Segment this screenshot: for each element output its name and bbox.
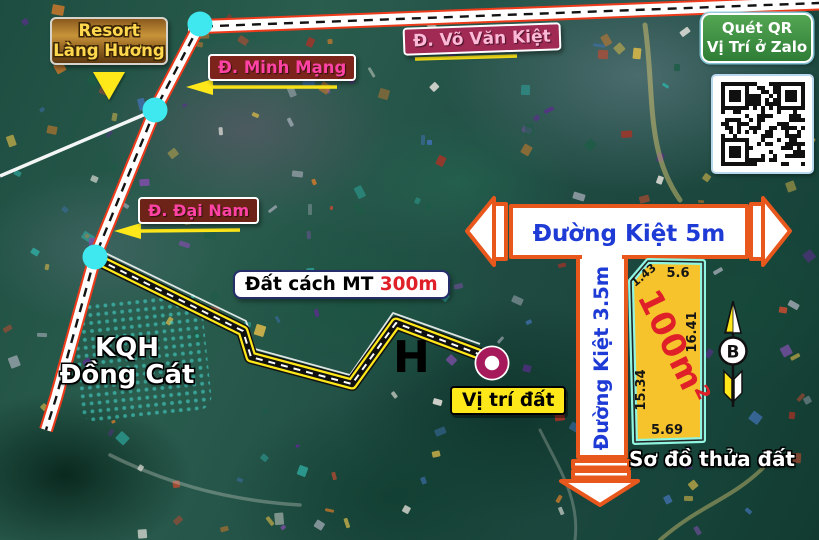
- alley-5m-label: Đường Kiệt 5m: [533, 221, 726, 247]
- vo-van-kiet-underline: [415, 56, 517, 59]
- road-label-dai-nam: Đ. Đại Nam: [138, 197, 259, 224]
- minh-mang-arrow: [186, 79, 337, 95]
- north-compass: B: [720, 301, 747, 407]
- real-estate-map-flyer: Đường Kiệt 5m Đường Kiệt 3.5m 1.43 5.6 1…: [0, 0, 819, 540]
- qr-code-pattern: [721, 82, 805, 166]
- road-label-minh-mang: Đ. Minh Mạng: [208, 54, 356, 81]
- h-map-mark: H: [393, 336, 430, 380]
- imagery-road: [110, 455, 300, 505]
- imagery-road: [645, 25, 680, 200]
- junction-dot: [188, 12, 213, 37]
- junction-dot: [83, 245, 108, 270]
- compass-letter: B: [727, 343, 740, 363]
- resort-pointer-triangle: [93, 72, 125, 100]
- plot-edge-left: 15.34: [634, 369, 649, 410]
- junction-dot: [143, 98, 168, 123]
- distance-value: 300m: [380, 274, 438, 295]
- plot-diagram-caption: Sơ đồ thửa đất: [622, 447, 802, 471]
- qr-code: [711, 74, 814, 174]
- plot-edge-top: 5.6: [666, 266, 689, 281]
- compass-fletch-right: [734, 371, 742, 401]
- plot-location-label: Vị trí đất: [450, 386, 566, 415]
- imagery-road: [660, 468, 763, 540]
- plot-edge-bottom: 5.69: [651, 423, 683, 438]
- location-marker: [475, 346, 510, 381]
- resort-lang-huong-label: Resort Làng Hương: [50, 17, 168, 65]
- dai-nam-arrow: [114, 223, 240, 239]
- alley-3-5m-label: Đường Kiệt 3.5m: [590, 266, 613, 450]
- road-label-vo-van-kiet: Đ. Võ Văn Kiệt: [403, 22, 562, 55]
- qr-panel-title: Quét QR Vị Trí ở Zalo: [701, 13, 813, 63]
- distance-note: Đất cách MT 300m: [233, 270, 450, 299]
- land-plot-diagram: 1.43 5.6 16.41 15.34 5.69 100m²: [628, 260, 719, 442]
- kqh-dong-cat-label: KQH Đồng Cát: [48, 335, 206, 389]
- compass-fletch-left: [724, 371, 732, 401]
